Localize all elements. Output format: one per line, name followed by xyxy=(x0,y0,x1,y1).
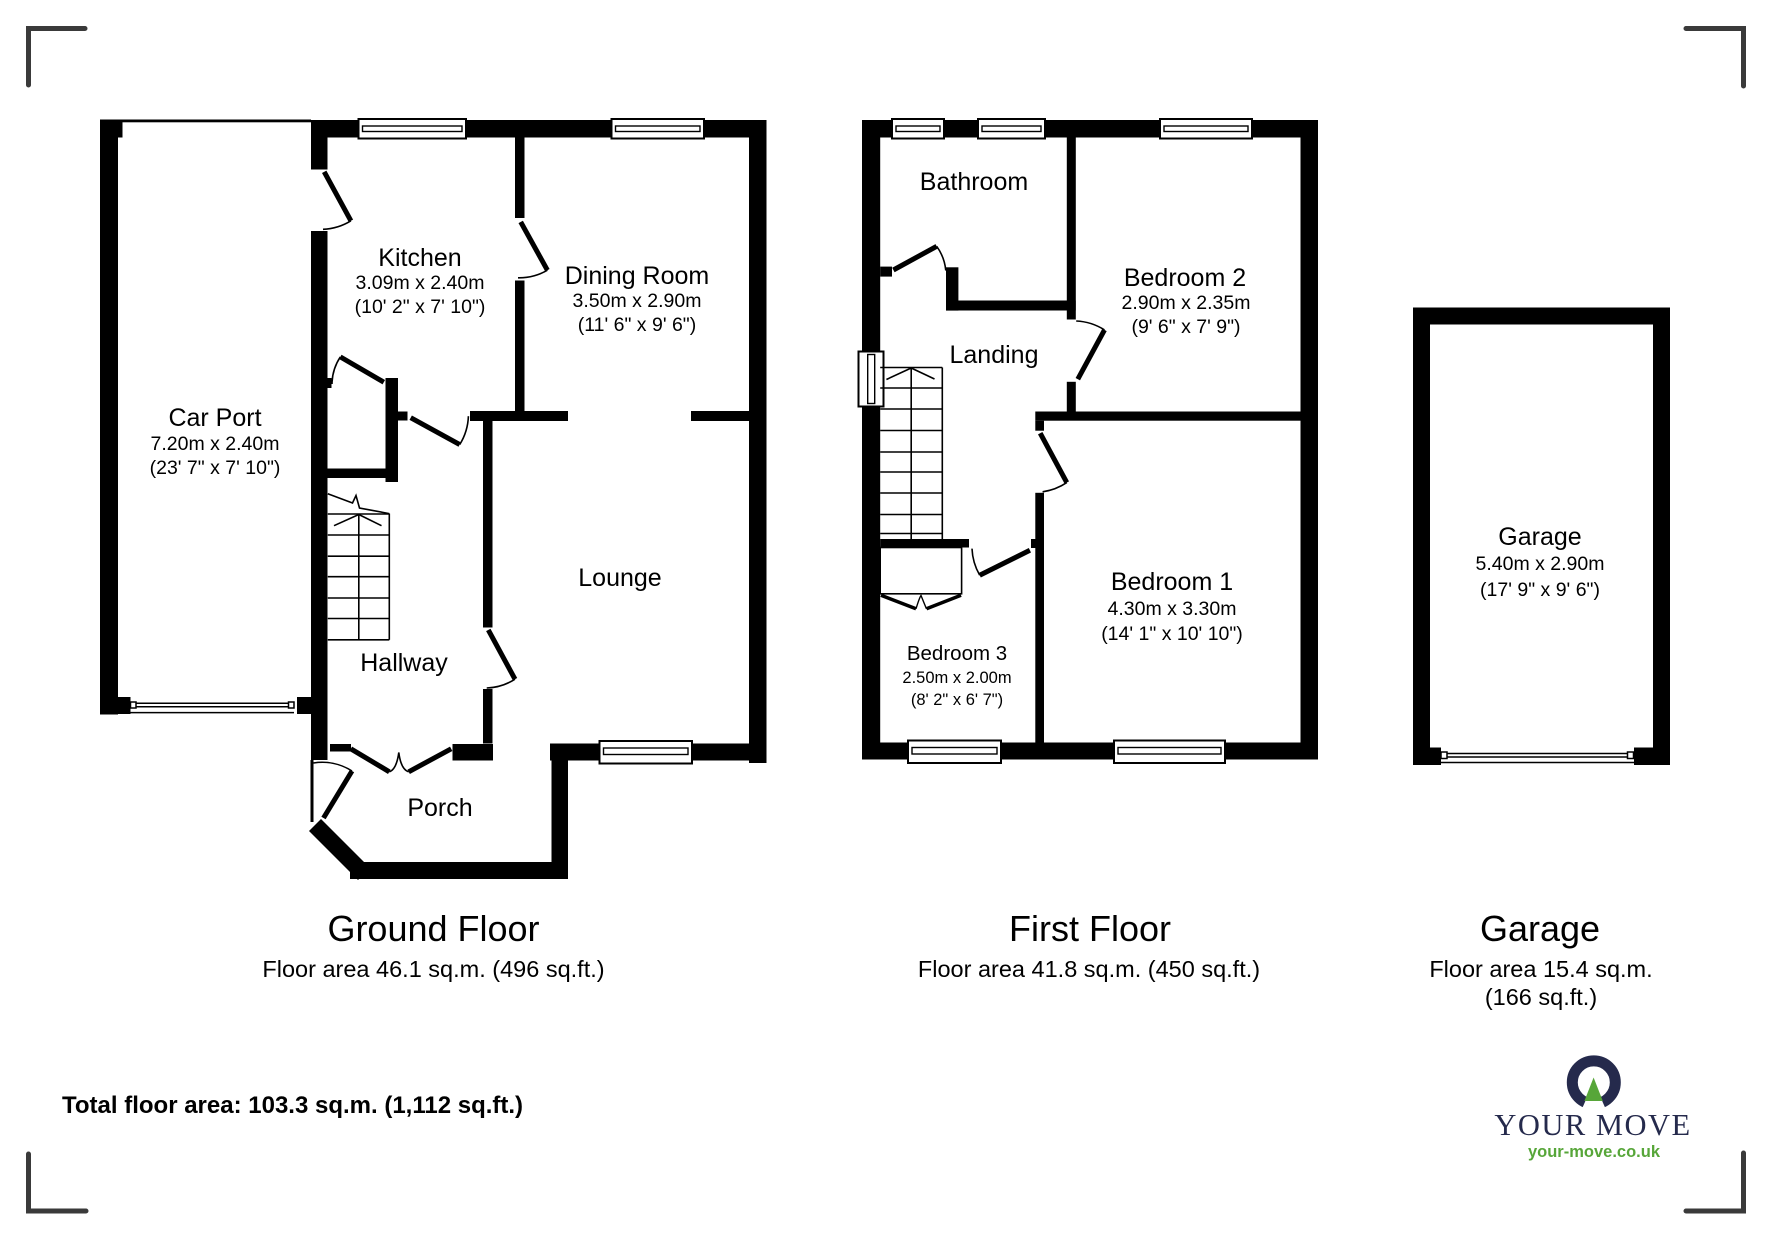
svg-text:(10' 2" x 7' 10"): (10' 2" x 7' 10") xyxy=(355,296,486,318)
svg-text:Bedroom 2: Bedroom 2 xyxy=(1124,264,1246,292)
svg-text:Car Port: Car Port xyxy=(168,404,261,432)
svg-text:Landing: Landing xyxy=(950,341,1039,369)
svg-text:Bedroom 3: Bedroom 3 xyxy=(907,642,1007,665)
svg-text:2.90m x 2.35m: 2.90m x 2.35m xyxy=(1122,292,1251,314)
svg-text:First Floor: First Floor xyxy=(1009,908,1171,949)
svg-text:Dining Room: Dining Room xyxy=(565,262,710,290)
svg-text:Hallway: Hallway xyxy=(360,649,448,677)
svg-text:Ground Floor: Ground Floor xyxy=(327,908,539,949)
svg-text:4.30m x 3.30m: 4.30m x 3.30m xyxy=(1108,598,1237,620)
svg-text:(166 sq.ft.): (166 sq.ft.) xyxy=(1485,984,1597,1010)
svg-text:3.50m x 2.90m: 3.50m x 2.90m xyxy=(573,290,702,312)
svg-text:Lounge: Lounge xyxy=(578,564,661,592)
svg-text:3.09m x 2.40m: 3.09m x 2.40m xyxy=(356,272,485,294)
svg-text:Bathroom: Bathroom xyxy=(920,168,1028,196)
svg-text:(17' 9" x 9' 6"): (17' 9" x 9' 6") xyxy=(1480,579,1600,601)
svg-text:7.20m x 2.40m: 7.20m x 2.40m xyxy=(151,433,280,455)
svg-text:Floor area 46.1 sq.m. (496 sq.: Floor area 46.1 sq.m. (496 sq.ft.) xyxy=(262,956,604,982)
svg-text:YOUR MOVE: YOUR MOVE xyxy=(1494,1108,1691,1142)
svg-text:(8' 2" x 6' 7"): (8' 2" x 6' 7") xyxy=(911,691,1003,709)
svg-text:(11' 6" x 9' 6"): (11' 6" x 9' 6") xyxy=(578,314,696,336)
svg-text:(9' 6" x 7' 9"): (9' 6" x 7' 9") xyxy=(1131,316,1240,338)
svg-text:Kitchen: Kitchen xyxy=(378,244,461,272)
svg-text:Porch: Porch xyxy=(407,794,472,822)
svg-text:Garage: Garage xyxy=(1480,908,1600,949)
svg-text:Floor area 41.8 sq.m. (450 sq.: Floor area 41.8 sq.m. (450 sq.ft.) xyxy=(918,956,1260,982)
svg-text:your-move.co.uk: your-move.co.uk xyxy=(1528,1143,1661,1161)
svg-text:Floor area 15.4 sq.m.: Floor area 15.4 sq.m. xyxy=(1429,956,1652,982)
svg-text:5.40m x 2.90m: 5.40m x 2.90m xyxy=(1476,553,1605,575)
svg-text:2.50m x 2.00m: 2.50m x 2.00m xyxy=(902,669,1011,687)
svg-text:Garage: Garage xyxy=(1498,523,1581,551)
svg-text:Bedroom 1: Bedroom 1 xyxy=(1111,568,1233,596)
svg-text:(23' 7" x 7' 10"): (23' 7" x 7' 10") xyxy=(150,457,281,479)
svg-text:(14' 1" x 10' 10"): (14' 1" x 10' 10") xyxy=(1101,623,1243,645)
svg-text:Total floor area: 103.3 sq.m.: Total floor area: 103.3 sq.m. (1,112 sq.… xyxy=(62,1092,523,1119)
